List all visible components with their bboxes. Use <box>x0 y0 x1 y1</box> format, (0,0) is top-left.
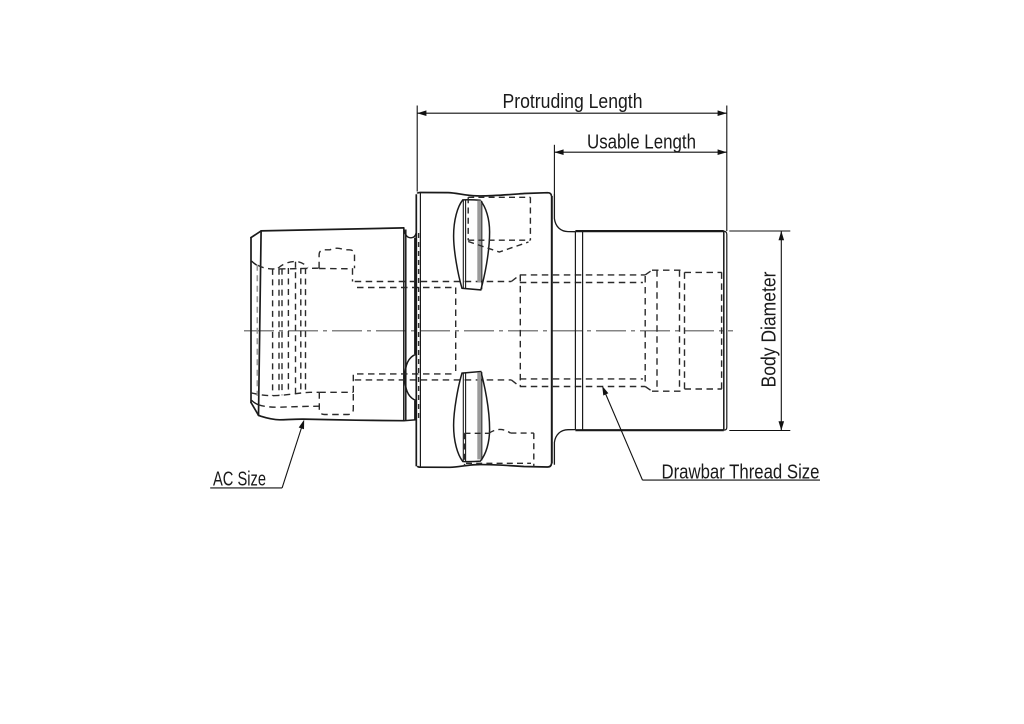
svg-text:AC Size: AC Size <box>213 469 266 491</box>
svg-text:Usable Length: Usable Length <box>587 131 696 153</box>
svg-text:Drawbar Thread Size: Drawbar Thread Size <box>662 462 820 484</box>
svg-text:Protruding Length: Protruding Length <box>503 91 643 113</box>
svg-text:Body Diameter: Body Diameter <box>759 271 781 387</box>
